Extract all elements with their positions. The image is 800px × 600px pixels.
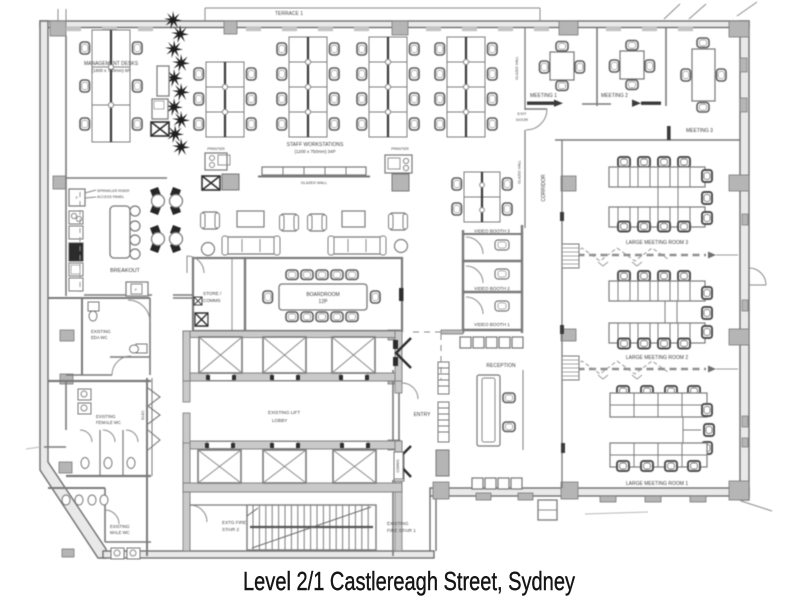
svg-text:EXTG FIRE: EXTG FIRE	[222, 520, 246, 525]
svg-text:BREAKOUT: BREAKOUT	[110, 268, 140, 274]
svg-text:FIRE STAIR 1: FIRE STAIR 1	[387, 528, 416, 533]
svg-text:12P: 12P	[319, 299, 329, 305]
svg-text:GLAZED WALL: GLAZED WALL	[518, 160, 522, 184]
svg-text:LARGE MEETING ROOM 3: LARGE MEETING ROOM 3	[626, 240, 688, 246]
svg-text:EXISTING: EXISTING	[387, 521, 409, 526]
svg-text:VIDEO BOOTH 3: VIDEO BOOTH 3	[474, 229, 510, 234]
svg-text:COMMS: COMMS	[396, 459, 400, 473]
svg-text:STAFF WORKSTATIONS: STAFF WORKSTATIONS	[287, 142, 344, 148]
svg-text:STAIR 2: STAIR 2	[222, 527, 239, 532]
svg-text:EXISTING: EXISTING	[110, 524, 130, 529]
svg-text:VIDEO BOOTH 2: VIDEO BOOTH 2	[474, 286, 510, 291]
svg-text:GLAZED WALL: GLAZED WALL	[301, 181, 327, 185]
svg-text:EDA WC: EDA WC	[91, 335, 108, 340]
svg-text:DOOR: DOOR	[516, 117, 528, 122]
svg-text:PRINTER: PRINTER	[391, 146, 409, 151]
svg-text:(1800 x 750mm) 6P: (1800 x 750mm) 6P	[92, 68, 131, 73]
svg-text:LARGE MEETING ROOM 1: LARGE MEETING ROOM 1	[626, 481, 688, 487]
svg-text:RECEPTION: RECEPTION	[486, 363, 516, 369]
svg-text:ELEC: ELEC	[141, 410, 145, 420]
svg-text:(1200 x 750mm) 34P: (1200 x 750mm) 34P	[295, 149, 336, 154]
svg-text:EXISTING LIFT: EXISTING LIFT	[268, 410, 300, 415]
svg-text:BOARDROOM: BOARDROOM	[306, 292, 339, 298]
svg-text:EXISTING: EXISTING	[91, 329, 111, 334]
svg-text:MALE WC: MALE WC	[110, 530, 130, 535]
svg-text:STORE /: STORE /	[203, 291, 222, 296]
svg-text:CORRIDOR: CORRIDOR	[541, 174, 547, 202]
svg-text:MEETING 3: MEETING 3	[686, 128, 713, 134]
svg-text:EXISTING: EXISTING	[96, 414, 116, 419]
svg-text:FEMALE WC: FEMALE WC	[96, 420, 121, 425]
svg-text:TERRACE 1: TERRACE 1	[275, 11, 303, 17]
svg-text:GLAZED WALL: GLAZED WALL	[515, 56, 519, 80]
svg-text:VIDEO BOOTH 1: VIDEO BOOTH 1	[474, 322, 510, 327]
svg-text:Level 2/1 Castlereagh Street,: Level 2/1 Castlereagh Street, Sydney	[243, 566, 575, 596]
svg-text:PRINTER: PRINTER	[207, 146, 225, 151]
svg-text:MEETING 2: MEETING 2	[601, 93, 628, 99]
svg-text:COMMS: COMMS	[203, 298, 221, 303]
svg-text:LARGE MEETING ROOM 2: LARGE MEETING ROOM 2	[626, 355, 688, 361]
svg-text:ENTRY: ENTRY	[414, 412, 432, 418]
svg-text:MANAGEMENT DESKS: MANAGEMENT DESKS	[84, 61, 139, 67]
svg-text:MEETING 1: MEETING 1	[530, 93, 557, 99]
svg-text:EXIT: EXIT	[518, 111, 527, 116]
svg-text:SPRINKLER RISER: SPRINKLER RISER	[97, 189, 130, 193]
svg-text:LOBBY: LOBBY	[272, 418, 287, 423]
svg-text:ACCESS PANEL: ACCESS PANEL	[97, 195, 124, 199]
